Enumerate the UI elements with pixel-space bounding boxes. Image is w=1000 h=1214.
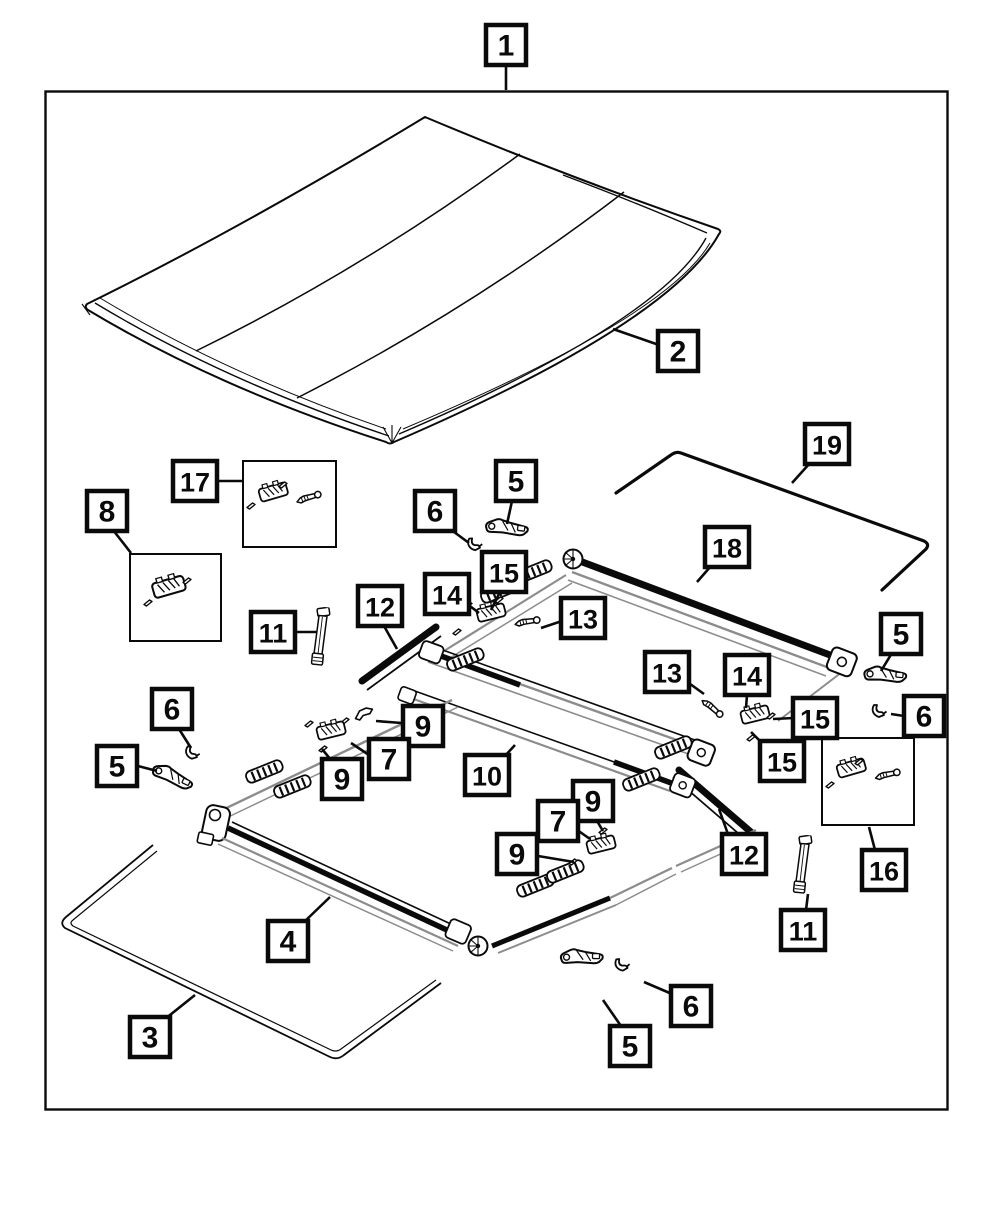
callout-leader-line [613, 329, 659, 345]
callout-leader-line [507, 501, 512, 524]
callout-leader-line [603, 1000, 621, 1026]
callout-12[interactable]: 12 [358, 586, 402, 649]
kit-bolt [296, 490, 322, 506]
hardware-box-17 [243, 461, 336, 547]
hardware-box-8 [130, 554, 221, 641]
callout-18[interactable]: 18 [697, 527, 749, 582]
callout-number: 8 [99, 496, 116, 529]
callout-number: 6 [164, 694, 181, 727]
callout-2[interactable]: 2 [613, 329, 698, 371]
front-hinge-cap [469, 937, 488, 956]
callout-number: 17 [180, 468, 210, 498]
callout-leader-line [384, 626, 397, 649]
callout-8[interactable]: 8 [87, 491, 131, 553]
callout-number: 7 [381, 744, 398, 777]
callout-number: 5 [893, 619, 910, 652]
callout-number: 9 [585, 786, 602, 819]
callout-number: 12 [729, 841, 759, 871]
kit-nut-clip [247, 503, 255, 509]
callout-11[interactable]: 11 [781, 894, 825, 950]
exploded-diagram-canvas: 1217856151413121118195615151314109799791… [0, 0, 1000, 1214]
callout-6[interactable]: 6 [415, 491, 469, 543]
kit-nut-clip [826, 782, 834, 788]
callout-number: 1 [498, 30, 515, 63]
cover-fold-seam-front [196, 154, 520, 351]
bow-end-bracket [397, 686, 417, 705]
callout-number: 6 [427, 496, 444, 529]
parts-diagram-page: 1217856151413121118195615151314109799791… [0, 0, 1000, 1214]
callout-12[interactable]: 12 [719, 809, 766, 874]
callout-3[interactable]: 3 [130, 995, 195, 1057]
cover-fold-seam-rear [297, 192, 624, 398]
callout-number: 6 [683, 991, 700, 1024]
hardware-box-16 [822, 738, 914, 825]
callout-13[interactable]: 13 [541, 598, 605, 638]
nut-clip-part-15 [453, 629, 461, 635]
rear-seal-part-19 [616, 452, 928, 590]
callout-13[interactable]: 13 [645, 652, 704, 694]
callout-number: 14 [732, 662, 762, 692]
latch-part-5 [560, 943, 604, 971]
callout-14[interactable]: 14 [725, 655, 769, 708]
callout-19[interactable]: 19 [792, 424, 849, 483]
clip-part-6 [873, 705, 887, 717]
callout-number: 11 [789, 917, 818, 947]
callout-number: 3 [142, 1022, 159, 1055]
nut-clip-part-9 [305, 721, 313, 727]
callout-number: 7 [550, 806, 567, 839]
bracket-part-7 [315, 717, 346, 740]
clip-part-6 [615, 958, 630, 972]
callout-leader-line [806, 894, 808, 910]
callout-15[interactable]: 15 [751, 732, 804, 781]
latch-part-5 [151, 764, 195, 790]
callout-5[interactable]: 5 [496, 461, 536, 524]
prop-rod-part-11 [311, 606, 331, 665]
front-seal-part-3 [62, 845, 441, 1058]
callout-leader-line [113, 530, 131, 553]
clip-part-6 [185, 746, 200, 759]
callout-number: 2 [670, 336, 687, 369]
callout-number: 9 [415, 711, 432, 744]
clip-part-9 [354, 707, 373, 720]
callout-14[interactable]: 14 [425, 574, 479, 614]
callout-number: 12 [365, 593, 395, 623]
kit-bolt [875, 768, 901, 783]
callout-number: 16 [869, 857, 899, 887]
bolt-part-13 [514, 615, 540, 628]
hinge-pad [244, 759, 284, 784]
callout-17[interactable]: 17 [173, 461, 242, 501]
callout-5[interactable]: 5 [881, 614, 921, 671]
callout-number: 5 [508, 466, 525, 499]
callout-number: 5 [622, 1031, 639, 1064]
callout-number: 13 [568, 605, 598, 635]
callout-number: 15 [767, 748, 797, 778]
callout-15[interactable]: 15 [773, 698, 837, 738]
callout-number: 5 [109, 751, 126, 784]
callout-leader-line [179, 729, 191, 748]
callout-number: 14 [432, 581, 462, 611]
callout-leader-line [376, 721, 402, 723]
cover-panel-part-2 [82, 117, 720, 444]
callout-5[interactable]: 5 [97, 746, 157, 786]
rail-end-bracket [825, 646, 858, 678]
callout-number: 18 [712, 534, 742, 564]
prop-rod-part-11 [793, 834, 813, 893]
callout-10[interactable]: 10 [465, 745, 515, 795]
callout-4[interactable]: 4 [268, 897, 330, 961]
callout-number: 11 [259, 619, 288, 649]
callout-5[interactable]: 5 [603, 1000, 650, 1066]
callout-number: 6 [916, 701, 933, 734]
callout-number: 13 [652, 659, 682, 689]
callout-number: 9 [509, 839, 526, 872]
hinge-plate-part-14 [475, 599, 506, 622]
callout-6[interactable]: 6 [891, 696, 944, 736]
callout-6[interactable]: 6 [644, 982, 711, 1026]
hinge-plate-part-14 [739, 701, 770, 724]
clip-part-6 [468, 538, 483, 551]
callout-16[interactable]: 16 [862, 827, 906, 890]
hinge-pad [545, 859, 585, 884]
callout-6[interactable]: 6 [152, 689, 192, 748]
kit-plate-part-16 [835, 754, 866, 778]
bow-corner-bracket [418, 640, 445, 664]
kit-nut-clip [144, 600, 152, 606]
callout-leader-line [644, 982, 672, 994]
callout-number: 10 [472, 762, 502, 792]
bracket-part-7 [585, 831, 616, 854]
callout-11[interactable]: 11 [251, 612, 317, 652]
callout-number: 9 [334, 764, 351, 797]
callout-number: 4 [280, 926, 297, 959]
callout-leader-line [538, 856, 574, 862]
callout-number: 15 [489, 559, 519, 589]
callout-number: 15 [800, 705, 830, 735]
rail-hinge-cap [564, 550, 583, 569]
callout-1[interactable]: 1 [486, 25, 526, 90]
callout-number: 19 [812, 431, 842, 461]
kit-plate-part-8 [150, 571, 186, 598]
bolt-part-13 [700, 698, 725, 718]
callouts: 1217856151413121118195615151314109799791… [87, 25, 944, 1066]
callout-leader-line [869, 827, 875, 850]
